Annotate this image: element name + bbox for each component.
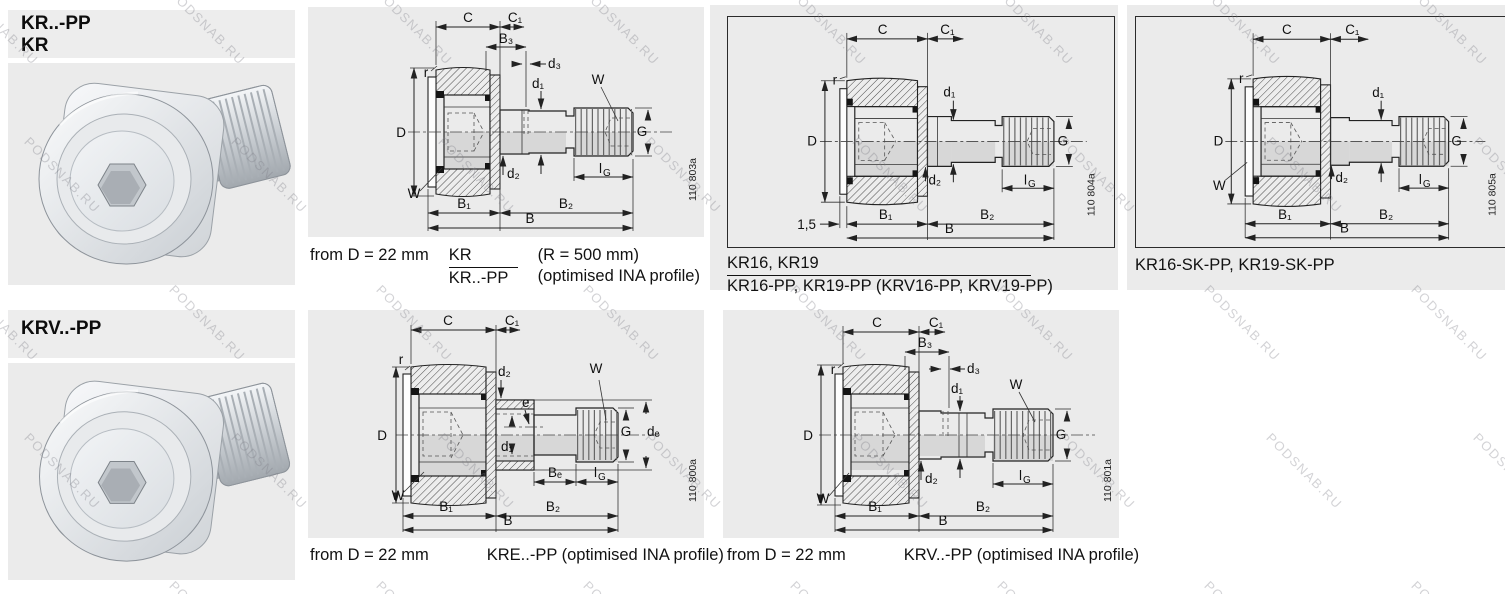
dim-label-c: C	[463, 10, 473, 25]
dim-label-lg: l	[599, 161, 602, 176]
dim-label-b1: B₁	[868, 499, 882, 514]
dim-label-g: G	[1451, 133, 1461, 148]
series-name-kr-pp: KR..-PP	[21, 13, 91, 34]
dim-label-c: C	[443, 313, 453, 328]
dim-label-c: C	[1282, 22, 1292, 37]
dim-label-b2: B₂	[980, 207, 994, 222]
dim-label-b1: B₁	[457, 196, 471, 211]
dim-label-r: r	[424, 65, 429, 80]
dim-label-w-top: W	[592, 72, 605, 87]
caption-prefix: from D = 22 mm	[310, 545, 429, 566]
figure-code: 110 800a	[687, 459, 699, 502]
dim-label-d3: d₃	[548, 56, 561, 71]
caption-line1: KR16, KR19	[727, 253, 1031, 276]
dim-label-d-cap: D	[377, 428, 387, 443]
dim-label-de: dₑ	[647, 424, 660, 439]
dim-label-c1: C₁	[929, 315, 944, 330]
dim-label-d-cap: D	[807, 133, 817, 148]
dim-label-b: B	[945, 221, 954, 236]
drawing-kre: C C₁ r D d₂ e d₁ W G dₑ W Bₑ l G B₁ B₂ B…	[308, 310, 704, 538]
dim-label-b: B	[938, 513, 947, 528]
dim-label-c1: C₁	[508, 10, 523, 25]
product-photo-krv	[8, 363, 295, 580]
caption-fraction-top: KR	[449, 245, 518, 268]
series-header-bottom: KRV..-PP	[8, 310, 295, 358]
dim-label-d1: d₁	[951, 381, 964, 396]
dim-label-c1: C₁	[1345, 22, 1360, 37]
dim-label-r: r	[399, 352, 404, 367]
dim-label-plate: 1,5	[797, 217, 816, 232]
caption-label: KRV..-PP (optimised INA profile)	[904, 545, 1139, 566]
dim-label-b3: B₃	[499, 31, 514, 46]
dim-label-b2: B₂	[976, 499, 990, 514]
dim-label-r: r	[1239, 71, 1244, 86]
figure-kre: C C₁ r D d₂ e d₁ W G dₑ W Bₑ l G B₁ B₂ B…	[308, 310, 704, 538]
dim-label-e: e	[522, 395, 530, 410]
cam-follower-photo	[8, 363, 295, 580]
dimension-lines	[820, 33, 1073, 240]
dim-label-be: Bₑ	[548, 465, 562, 480]
dim-label-lg-sub: G	[603, 168, 611, 179]
dim-label-g: G	[621, 424, 632, 439]
caption-line2: KR16-PP, KR19-PP (KRV16-PP, KRV19-PP)	[727, 276, 1053, 297]
cam-follower-photo	[8, 63, 295, 285]
drawing-kr: C C₁ B₃ d₃ d₁ W r D W d₂ l G G B₁ B₂ B 1…	[308, 7, 704, 237]
drawing-frame: C C₁ r d₁ D d₂ l G G 1,5 B₁ B₂ B 110 804…	[727, 16, 1115, 248]
series-name-kr: KR	[21, 35, 48, 56]
caption-prefix: from D = 22 mm	[310, 245, 429, 289]
figure-kr: C C₁ B₃ d₃ d₁ W r D W d₂ l G G B₁ B₂ B 1…	[308, 7, 704, 237]
series-name-krv-pp: KRV..-PP	[21, 318, 101, 339]
dimension-lines	[1225, 33, 1467, 239]
dim-label-d-cap: D	[803, 428, 813, 443]
dim-label-lg-sub: G	[598, 472, 606, 483]
dim-label-d1: d₁	[532, 76, 545, 91]
figure-kr-caption: from D = 22 mm KR KR..-PP (R = 500 mm) (…	[310, 245, 700, 289]
dim-label-w-bottom: W	[817, 491, 830, 506]
dim-label-b2: B₂	[1379, 207, 1393, 222]
drawing-krv: C C₁ B₃ d₃ d₁ W r D W d₂ l G G B₁ B₂ B 1…	[723, 310, 1119, 538]
drawing-kr16sk: C C₁ r d₁ D W d₂ l G G B₁ B₂ B 110 805a	[1136, 17, 1505, 246]
dim-label-d1: d₁	[501, 439, 514, 454]
dim-label-r: r	[833, 73, 838, 88]
figure-code: 110 801a	[1102, 459, 1114, 502]
dim-label-b3: B₃	[918, 335, 933, 350]
dim-label-w-top: W	[590, 361, 603, 376]
figure-kre-caption: from D = 22 mm KRE..-PP (optimised INA p…	[310, 545, 724, 566]
dim-label-d2: d₂	[498, 364, 511, 379]
dim-label-w-bottom: W	[408, 186, 421, 201]
dim-label-d-cap: D	[396, 125, 406, 140]
caption-line1: KR16-SK-PP, KR19-SK-PP	[1135, 255, 1335, 276]
dim-label-b: B	[1340, 221, 1349, 236]
dim-label-lg: l	[1024, 172, 1027, 187]
dim-label-d2: d₂	[507, 166, 520, 181]
dim-label-c: C	[872, 315, 882, 330]
figure-kr16-caption: KR16, KR19 KR16-PP, KR19-PP (KRV16-PP, K…	[727, 253, 1053, 297]
dim-label-g: G	[637, 124, 648, 139]
series-header-top: KR..-PP KR	[8, 10, 295, 58]
dim-label-c1: C₁	[940, 22, 955, 37]
dim-label-c: C	[878, 22, 888, 37]
dim-label-b2: B₂	[559, 196, 573, 211]
dimension-lines	[410, 21, 652, 231]
caption-note-bottom: (optimised INA profile)	[538, 266, 700, 287]
figure-code: 110 804a	[1087, 173, 1098, 216]
dim-label-b: B	[503, 513, 512, 528]
catalog-page: KR..-PP KR KRV..-PP	[0, 0, 1505, 594]
caption-fraction: KR KR..-PP	[449, 245, 518, 289]
caption-note-top: (R = 500 mm)	[538, 245, 700, 266]
figure-code: 110 805a	[1487, 173, 1498, 216]
figure-krv-caption: from D = 22 mm KRV..-PP (optimised INA p…	[727, 545, 1139, 566]
caption-prefix: from D = 22 mm	[727, 545, 846, 566]
figure-krv: C C₁ B₃ d₃ d₁ W r D W d₂ l G G B₁ B₂ B 1…	[723, 310, 1119, 538]
dim-label-d1: d₁	[943, 85, 955, 100]
dim-label-c1: C₁	[505, 313, 520, 328]
caption-notes: (R = 500 mm) (optimised INA profile)	[538, 245, 700, 289]
dim-label-w-top: W	[1010, 377, 1023, 392]
caption-label: KRE..-PP (optimised INA profile)	[487, 545, 724, 566]
figure-kr16sk-caption: KR16-SK-PP, KR19-SK-PP	[1135, 255, 1335, 276]
product-photo-kr	[8, 63, 295, 285]
figure-code: 110 803a	[687, 158, 699, 201]
dim-label-lg: l	[1019, 468, 1022, 483]
dim-label-d2: d₂	[925, 471, 938, 486]
dim-label-w-bottom: W	[392, 488, 405, 503]
dim-label-lg: l	[1419, 172, 1422, 187]
dim-label-lg-sub: G	[1023, 475, 1031, 486]
caption-fraction-bottom: KR..-PP	[449, 268, 518, 289]
drawing-kr16: C C₁ r d₁ D d₂ l G G 1,5 B₁ B₂ B 110 804…	[728, 17, 1113, 246]
dim-label-b: B	[525, 211, 534, 226]
dim-label-d2: d₂	[1335, 170, 1348, 185]
dim-label-g: G	[1058, 133, 1068, 148]
dim-label-d3: d₃	[967, 361, 980, 376]
figure-kr16sk-region: C C₁ r d₁ D W d₂ l G G B₁ B₂ B 110 805a …	[1127, 5, 1505, 290]
dim-label-d-cap: D	[1214, 133, 1224, 148]
dim-label-b1: B₁	[1278, 207, 1292, 222]
section-geometry	[1225, 76, 1485, 206]
dim-label-lg: l	[594, 465, 597, 480]
dim-label-w: W	[1213, 178, 1226, 193]
drawing-frame: C C₁ r d₁ D W d₂ l G G B₁ B₂ B 110 805a	[1135, 16, 1505, 248]
dim-label-r: r	[831, 362, 836, 377]
dim-label-b2: B₂	[546, 499, 560, 514]
dim-label-b1: B₁	[439, 499, 453, 514]
dim-label-d1: d₁	[1372, 85, 1384, 100]
dim-label-g: G	[1056, 427, 1067, 442]
dim-label-lg-sub: G	[1028, 179, 1036, 190]
dim-label-lg-sub: G	[1423, 179, 1431, 190]
figure-kr16-region: C C₁ r d₁ D d₂ l G G 1,5 B₁ B₂ B 110 804…	[710, 5, 1118, 290]
dim-label-b1: B₁	[879, 207, 893, 222]
dim-label-d2: d₂	[928, 172, 941, 187]
